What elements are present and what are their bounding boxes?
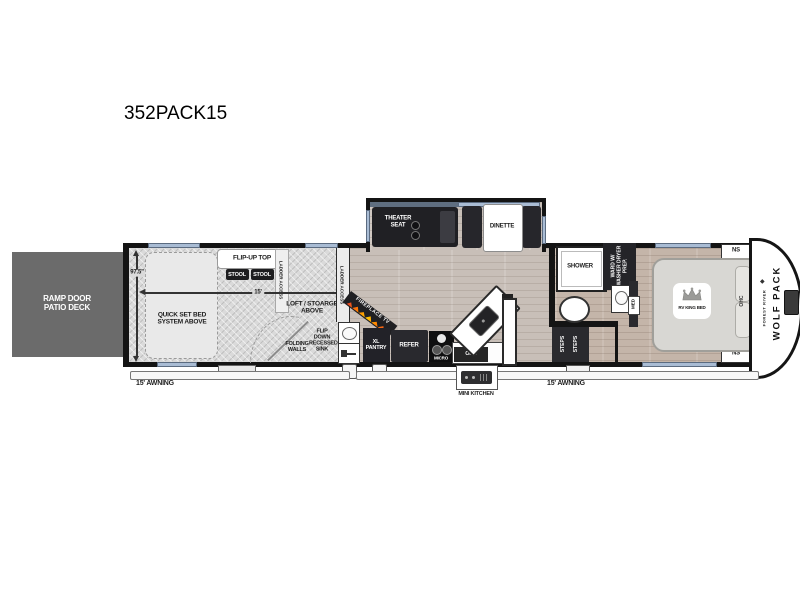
knob-icon xyxy=(465,376,468,379)
slideout-window-left xyxy=(366,210,370,242)
dim-width-arrow-top xyxy=(133,250,139,256)
awning-left-bar xyxy=(130,371,350,380)
ramp-deck-label: RAMP DOOR PATIO DECK xyxy=(36,295,98,313)
floorplan-canvas: 352PACK15 RAMP DOOR PATIO DECK THEATER S… xyxy=(0,0,800,600)
brand-name-label: WOLF PACK xyxy=(772,266,783,341)
cupholder-icon xyxy=(411,231,420,240)
steps-label-2: STEPS xyxy=(573,336,579,352)
mini-kitchen xyxy=(456,365,498,390)
hitch-pin xyxy=(784,290,799,315)
quick-set-bed xyxy=(145,252,218,359)
window-bottom-garage xyxy=(157,362,197,367)
microwave-label: MICRO xyxy=(434,355,448,360)
dim-width-label: 97.5" xyxy=(129,270,145,277)
grate-icon xyxy=(480,374,489,381)
knob-icon xyxy=(472,376,475,379)
window-top-garage xyxy=(148,243,200,248)
burner-icon xyxy=(432,345,442,355)
crown-icon xyxy=(681,287,703,302)
dim-width-arrow-bottom xyxy=(133,356,139,362)
brand-maker-label: FOREST RIVER xyxy=(762,290,767,327)
ladder-access-1-label: LADDER ACCESS xyxy=(279,261,284,300)
stool-1-label: STOOL xyxy=(228,272,246,278)
vanity-bowl xyxy=(615,291,628,305)
quick-set-bed-label: QUICK SET BED SYSTEM ABOVE xyxy=(149,312,215,327)
burner-icon xyxy=(442,345,452,355)
dinette-label: DINETTE xyxy=(490,224,514,231)
awning-right-label: 15' AWNING xyxy=(547,380,585,388)
nightstand-top-label: NS xyxy=(732,248,740,255)
step-arrow-line xyxy=(347,353,356,355)
theater-seat-cushion xyxy=(440,211,455,243)
bath-wall-left xyxy=(549,248,555,327)
refrigerator-label: REFER xyxy=(399,343,418,350)
steps xyxy=(552,327,589,362)
awning-right-bar xyxy=(356,371,759,380)
toilet xyxy=(559,296,590,323)
wall-rear xyxy=(123,243,129,367)
xl-pantry-label: XL PANTRY xyxy=(364,339,388,351)
window-bottom-bedroom xyxy=(642,362,717,367)
dim-length-line xyxy=(143,292,336,294)
bed-badge: RV KING BED xyxy=(673,283,711,319)
mini-kitchen-grill xyxy=(461,371,492,384)
dim-length-arrow-left xyxy=(139,289,145,295)
flip-down-sink-label: FLIP DOWN RECESSED SINK xyxy=(309,329,335,354)
recessed-sink-cabinet xyxy=(338,322,360,345)
bedroom-wall xyxy=(615,327,618,367)
window-top-bedroom xyxy=(655,243,711,248)
slideout-window-right xyxy=(542,216,546,244)
flip-up-top-label: FLIP-UP TOP xyxy=(233,254,271,261)
brand-logo-icon: ◆ xyxy=(760,278,765,285)
window-top-loft xyxy=(305,243,338,248)
dinette-bench-left xyxy=(462,206,482,248)
page-title: 352PACK15 xyxy=(124,103,227,125)
steps-label-1: STEPS xyxy=(560,336,566,352)
bed-label: RV KING BED xyxy=(675,305,709,310)
medicine-label: MED xyxy=(631,299,636,309)
wardrobe-label: WARD W/ WASHER DRYER PREP. xyxy=(611,243,628,289)
garage-step-cabinet xyxy=(338,343,360,364)
bedroom-ohc-label: OHC xyxy=(739,295,745,306)
counter-wall xyxy=(502,298,517,366)
awning-left-label: 15' AWNING xyxy=(136,380,174,388)
faucet-icon xyxy=(481,319,485,323)
theater-seat-label: THEATER SEAT xyxy=(377,215,419,228)
shower-label: SHOWER xyxy=(567,264,593,271)
mini-kitchen-label: MINI KITCHEN xyxy=(440,391,512,397)
recessed-sink-bowl xyxy=(342,327,357,340)
stool-2-label: STOOL xyxy=(253,272,271,278)
dim-length-label: 15' xyxy=(252,290,264,297)
loft-storage-label: LOFT / STOARGE ABOVE xyxy=(284,301,340,316)
burner-icon xyxy=(437,334,446,343)
dinette-bench-right xyxy=(522,206,541,248)
